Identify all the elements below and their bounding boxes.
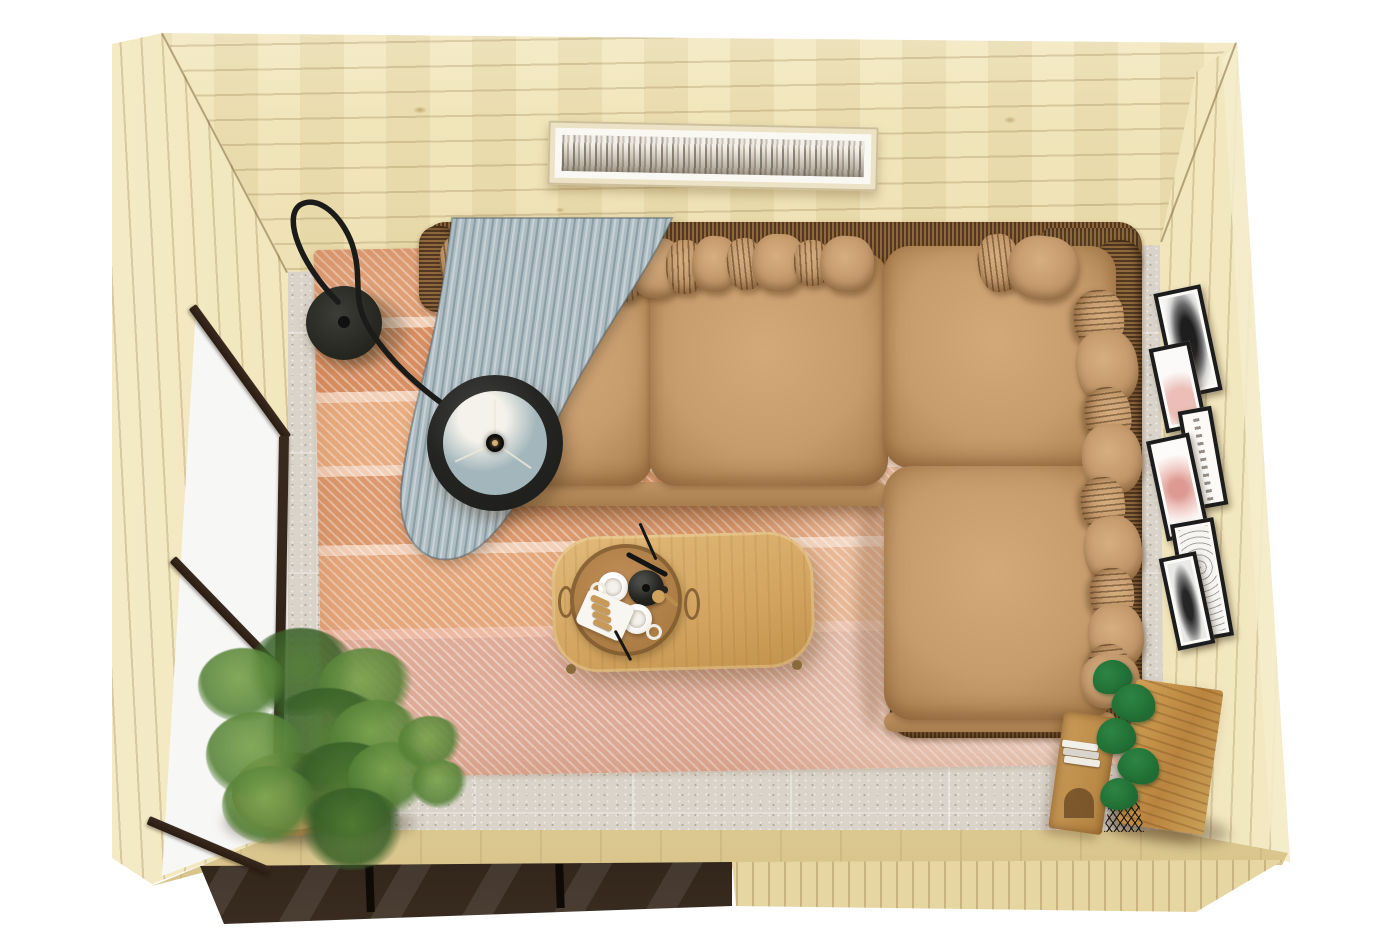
shelf-arch-shadow — [1064, 788, 1094, 818]
fern-foliage — [300, 788, 404, 870]
fern-foliage — [412, 760, 468, 808]
tray-handle — [558, 586, 574, 618]
garden-room-top-view — [0, 0, 1400, 934]
table-leg — [792, 660, 802, 670]
wooden-scoop — [652, 590, 665, 603]
table-leg — [566, 664, 576, 674]
lamp-bulb-glow — [492, 440, 498, 446]
tray-handle — [684, 588, 700, 620]
mug-handle — [646, 624, 662, 640]
